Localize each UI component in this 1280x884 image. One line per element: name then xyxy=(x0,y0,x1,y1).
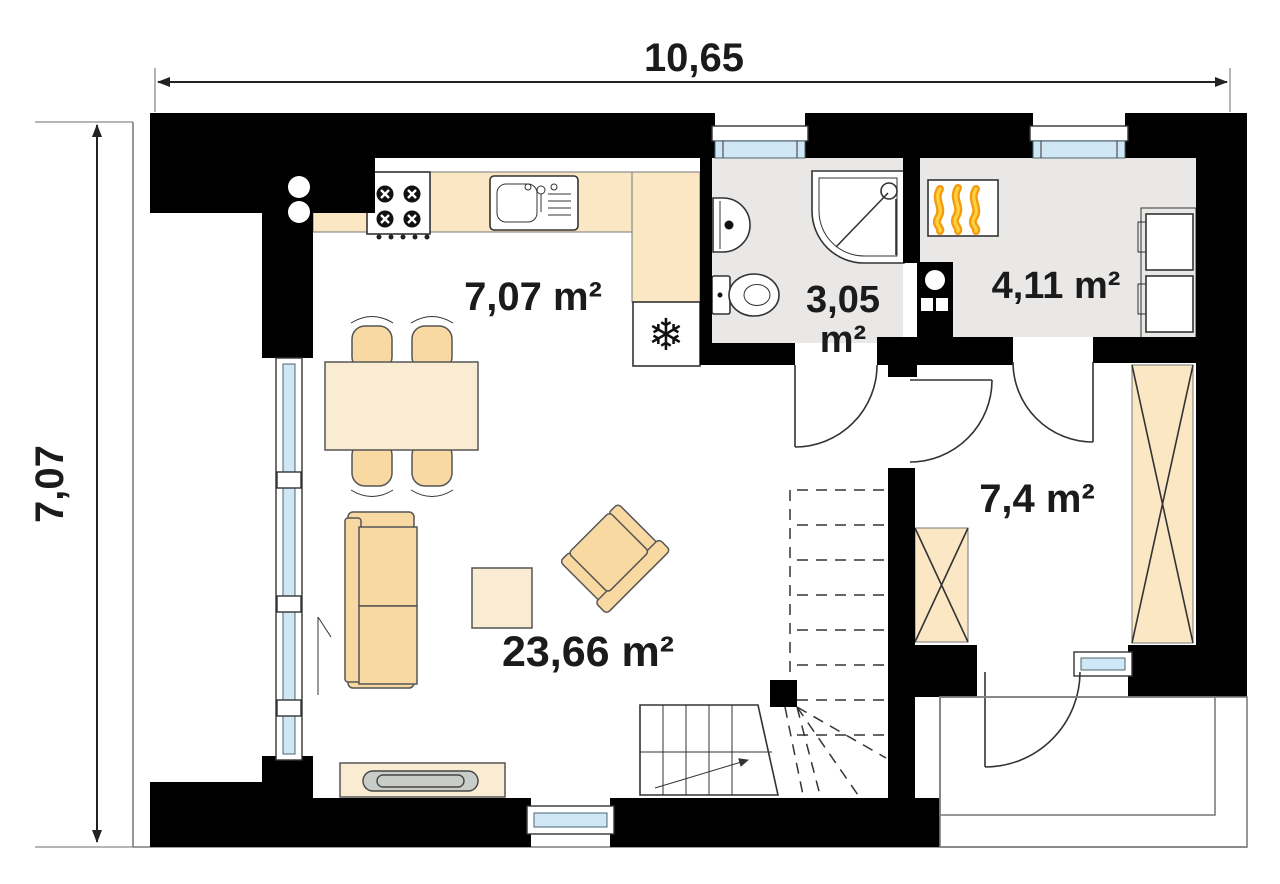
heater xyxy=(928,180,998,236)
dimension-left: 7,07 xyxy=(28,125,97,842)
wall-dot xyxy=(288,201,310,223)
window-living-bottom xyxy=(527,806,614,834)
bathroom-area-label-line2: m² xyxy=(820,319,866,361)
wall-room-left xyxy=(888,468,915,800)
fridge: ❄ xyxy=(633,302,700,366)
wall-entrance-right xyxy=(1128,645,1247,697)
wall-bottom-left xyxy=(313,798,531,847)
porch xyxy=(940,697,1247,847)
door-bathroom xyxy=(795,365,877,447)
dimension-width-label: 10,65 xyxy=(644,36,744,80)
wardrobe-small xyxy=(915,528,968,642)
wardrobe-tall xyxy=(1132,365,1193,643)
toilet xyxy=(712,274,779,316)
wall-bottom-right xyxy=(610,798,940,847)
kitchen-area-label: 7,07 m² xyxy=(464,275,602,319)
floor-plan-drawing: 10,65 7,07 xyxy=(0,0,1280,884)
wall-bath-bottom-left xyxy=(700,343,795,365)
wall-kitchen-bath-divider xyxy=(700,157,712,365)
floor-plan-page: 10,65 7,07 xyxy=(0,0,1280,884)
dining-table xyxy=(325,362,478,450)
stairs-upper-flight-dashed xyxy=(790,490,886,735)
snowflake-icon: ❄ xyxy=(648,310,685,361)
dining-set xyxy=(325,317,478,497)
wall-room-step xyxy=(915,645,977,697)
stove xyxy=(367,172,430,240)
coffee-table xyxy=(472,568,532,628)
kitchen-sink xyxy=(490,176,578,230)
stair-newel-post xyxy=(770,680,797,707)
stairs-winders-dashed xyxy=(785,707,886,795)
door-room xyxy=(910,380,992,462)
wall-right xyxy=(1196,113,1247,697)
window-bathroom-top xyxy=(712,126,808,158)
window-entrance xyxy=(1074,652,1132,676)
sofa xyxy=(345,512,417,688)
room-area-label: 7,4 m² xyxy=(979,477,1095,521)
stairs-lower-flight xyxy=(640,705,778,795)
dimension-top: 10,65 xyxy=(158,36,1227,82)
tv-console xyxy=(340,763,505,797)
chimney-block xyxy=(917,262,953,343)
wall-bath-boiler-divider xyxy=(903,157,920,263)
door-entrance xyxy=(985,672,1080,767)
window-boiler-top xyxy=(1030,126,1128,158)
wall-door-stub xyxy=(888,365,917,377)
wall-left-wing xyxy=(150,782,313,847)
wall-dot xyxy=(288,176,310,198)
stairs xyxy=(640,490,886,795)
dimension-height-label: 7,07 xyxy=(28,445,72,523)
window-swing-mark xyxy=(318,617,331,695)
bathroom-area-label-line1: 3,05 xyxy=(806,279,880,321)
boiler-room-area-label: 4,11 m² xyxy=(992,265,1121,307)
armchair xyxy=(557,501,670,614)
door-boiler-room xyxy=(1013,362,1093,442)
window-living-left xyxy=(276,358,302,760)
living-room-area-label: 23,66 m² xyxy=(502,628,674,676)
wall-boiler-bottom-right xyxy=(1093,337,1196,363)
wall-top-middle xyxy=(805,113,1033,158)
